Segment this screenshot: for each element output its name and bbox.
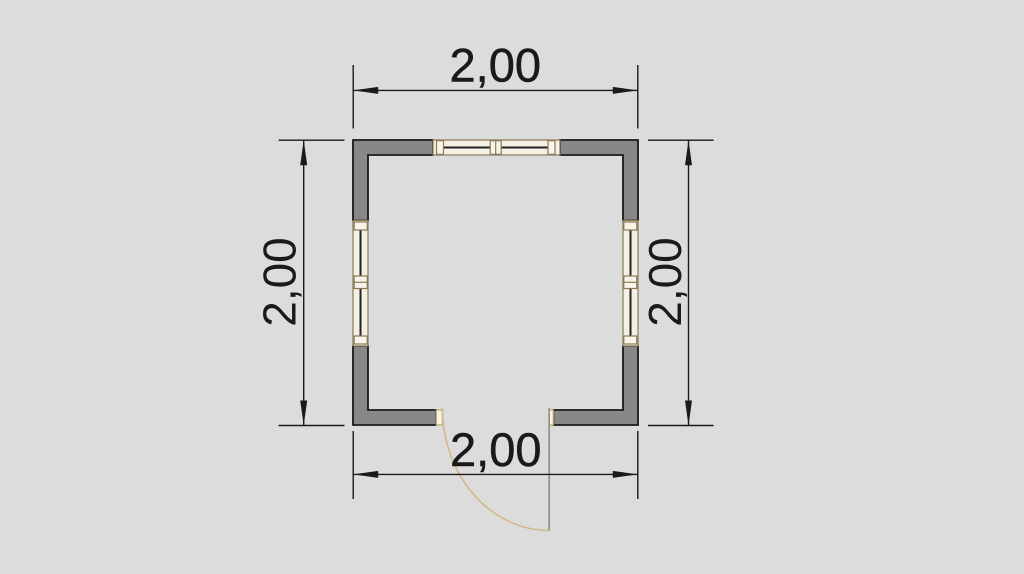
- svg-text:2,00: 2,00: [450, 423, 541, 476]
- svg-text:2,00: 2,00: [450, 39, 541, 92]
- svg-text:2,00: 2,00: [253, 237, 305, 327]
- svg-text:2,00: 2,00: [639, 237, 691, 327]
